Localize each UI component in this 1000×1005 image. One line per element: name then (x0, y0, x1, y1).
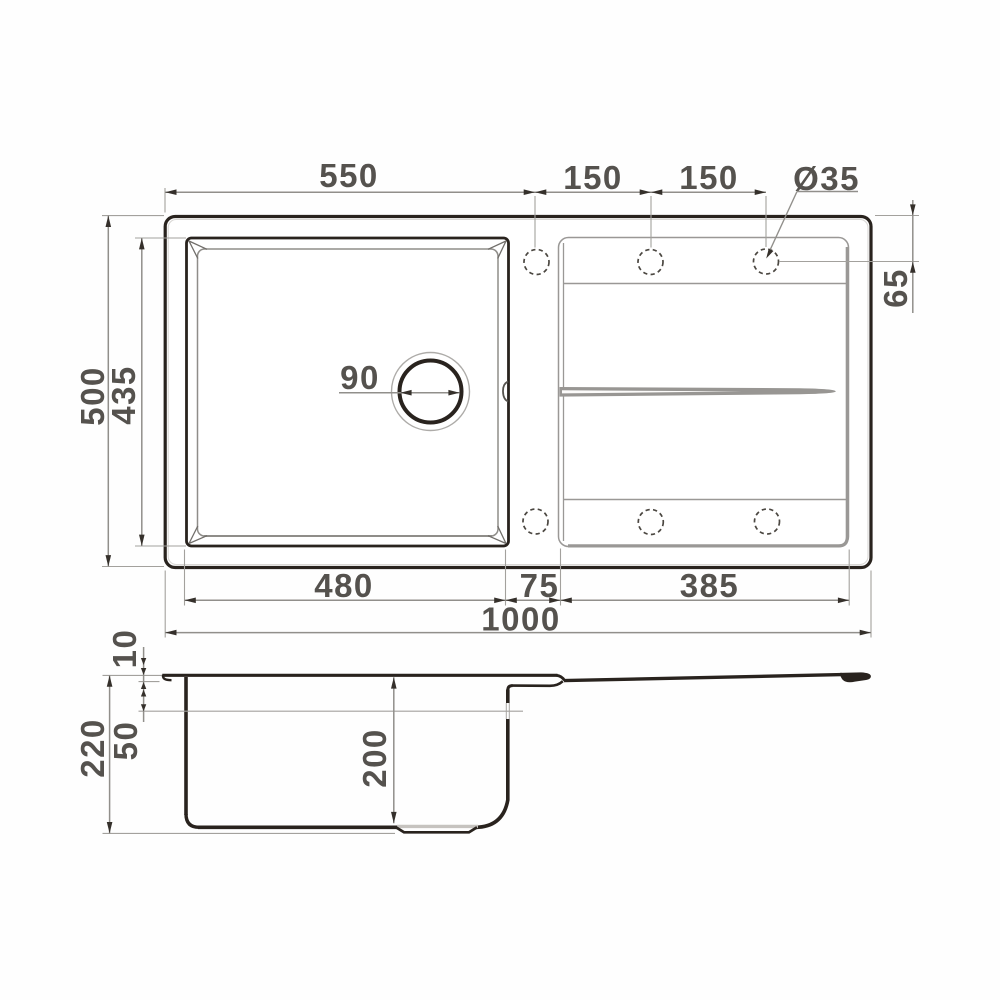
svg-text:75: 75 (520, 567, 560, 604)
svg-text:10: 10 (106, 629, 143, 669)
svg-text:90: 90 (340, 359, 380, 396)
svg-text:550: 550 (319, 157, 379, 194)
svg-text:220: 220 (74, 718, 111, 778)
svg-text:150: 150 (563, 159, 623, 196)
svg-text:50: 50 (107, 721, 144, 761)
svg-text:200: 200 (356, 728, 393, 788)
svg-text:480: 480 (314, 567, 374, 604)
svg-text:65: 65 (877, 268, 914, 308)
svg-text:385: 385 (680, 567, 740, 604)
svg-text:1000: 1000 (481, 601, 560, 638)
svg-text:150: 150 (679, 159, 739, 196)
svg-text:435: 435 (105, 365, 142, 425)
